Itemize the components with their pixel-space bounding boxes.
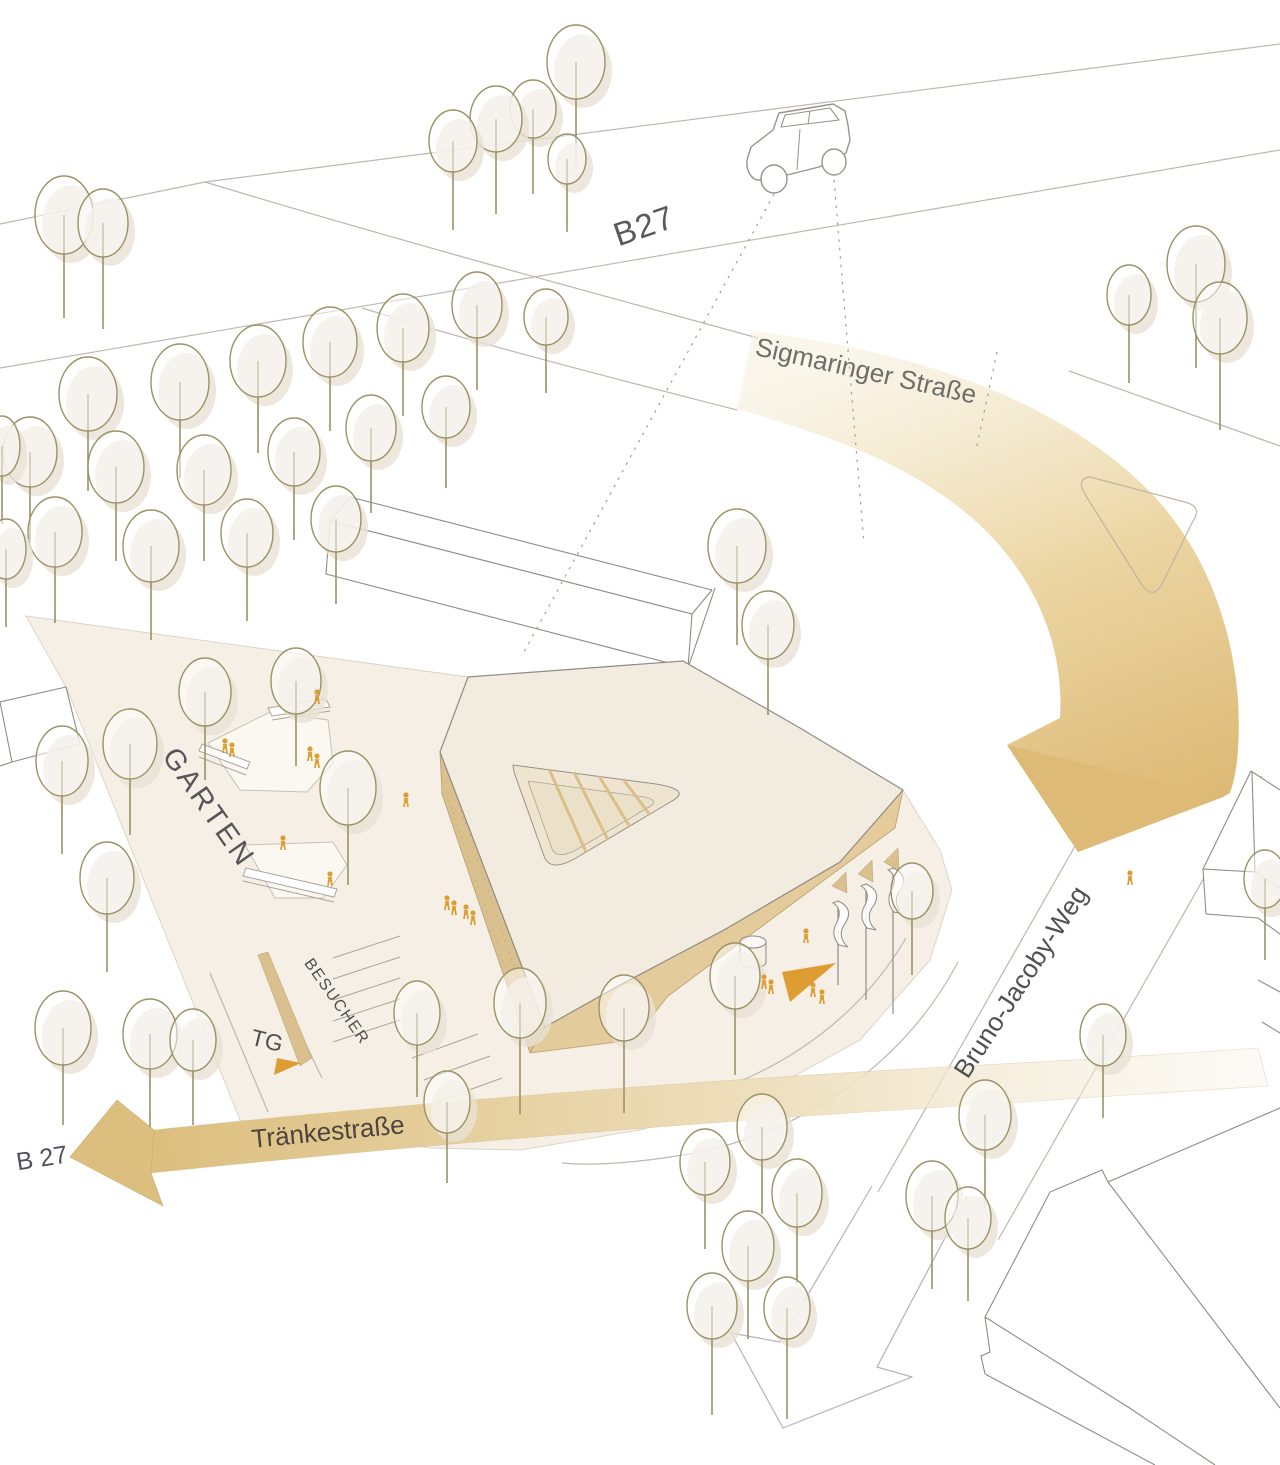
tree: [1193, 282, 1254, 430]
tree: [945, 1187, 998, 1301]
tree: [78, 189, 135, 329]
site-plan: B27 Sigmaringer Straße GARTEN TG BESUCHE…: [0, 0, 1280, 1465]
tree: [429, 110, 484, 230]
tree: [123, 510, 186, 640]
road-b27-lower-edge: [0, 150, 1280, 368]
tree: [772, 1159, 829, 1283]
tree: [311, 486, 368, 604]
tree: [221, 499, 280, 621]
tree: [764, 1277, 817, 1419]
car: [747, 104, 850, 193]
road-b27-upper-edge: [0, 44, 1280, 224]
tree: [346, 395, 403, 513]
tree: [170, 1009, 223, 1125]
tree: [28, 497, 89, 623]
tree: [35, 991, 98, 1125]
road-east-edge-1: [1069, 371, 1280, 446]
tree: [524, 289, 575, 393]
tree: [1107, 265, 1158, 383]
tree: [548, 134, 593, 232]
car-wheel: [822, 149, 846, 175]
person-figure: [1127, 870, 1133, 885]
tree: [742, 591, 801, 715]
car-wheel: [761, 165, 787, 193]
tree: [422, 376, 477, 488]
tree: [36, 726, 95, 854]
tree: [80, 842, 141, 972]
neighbor-building-bottom-right: [981, 1108, 1280, 1465]
tree: [687, 1273, 744, 1415]
existing-long-building: [326, 497, 715, 668]
tree: [452, 272, 509, 390]
tree: [123, 999, 184, 1127]
traenkestrasse-arrow-head: [70, 1100, 163, 1206]
